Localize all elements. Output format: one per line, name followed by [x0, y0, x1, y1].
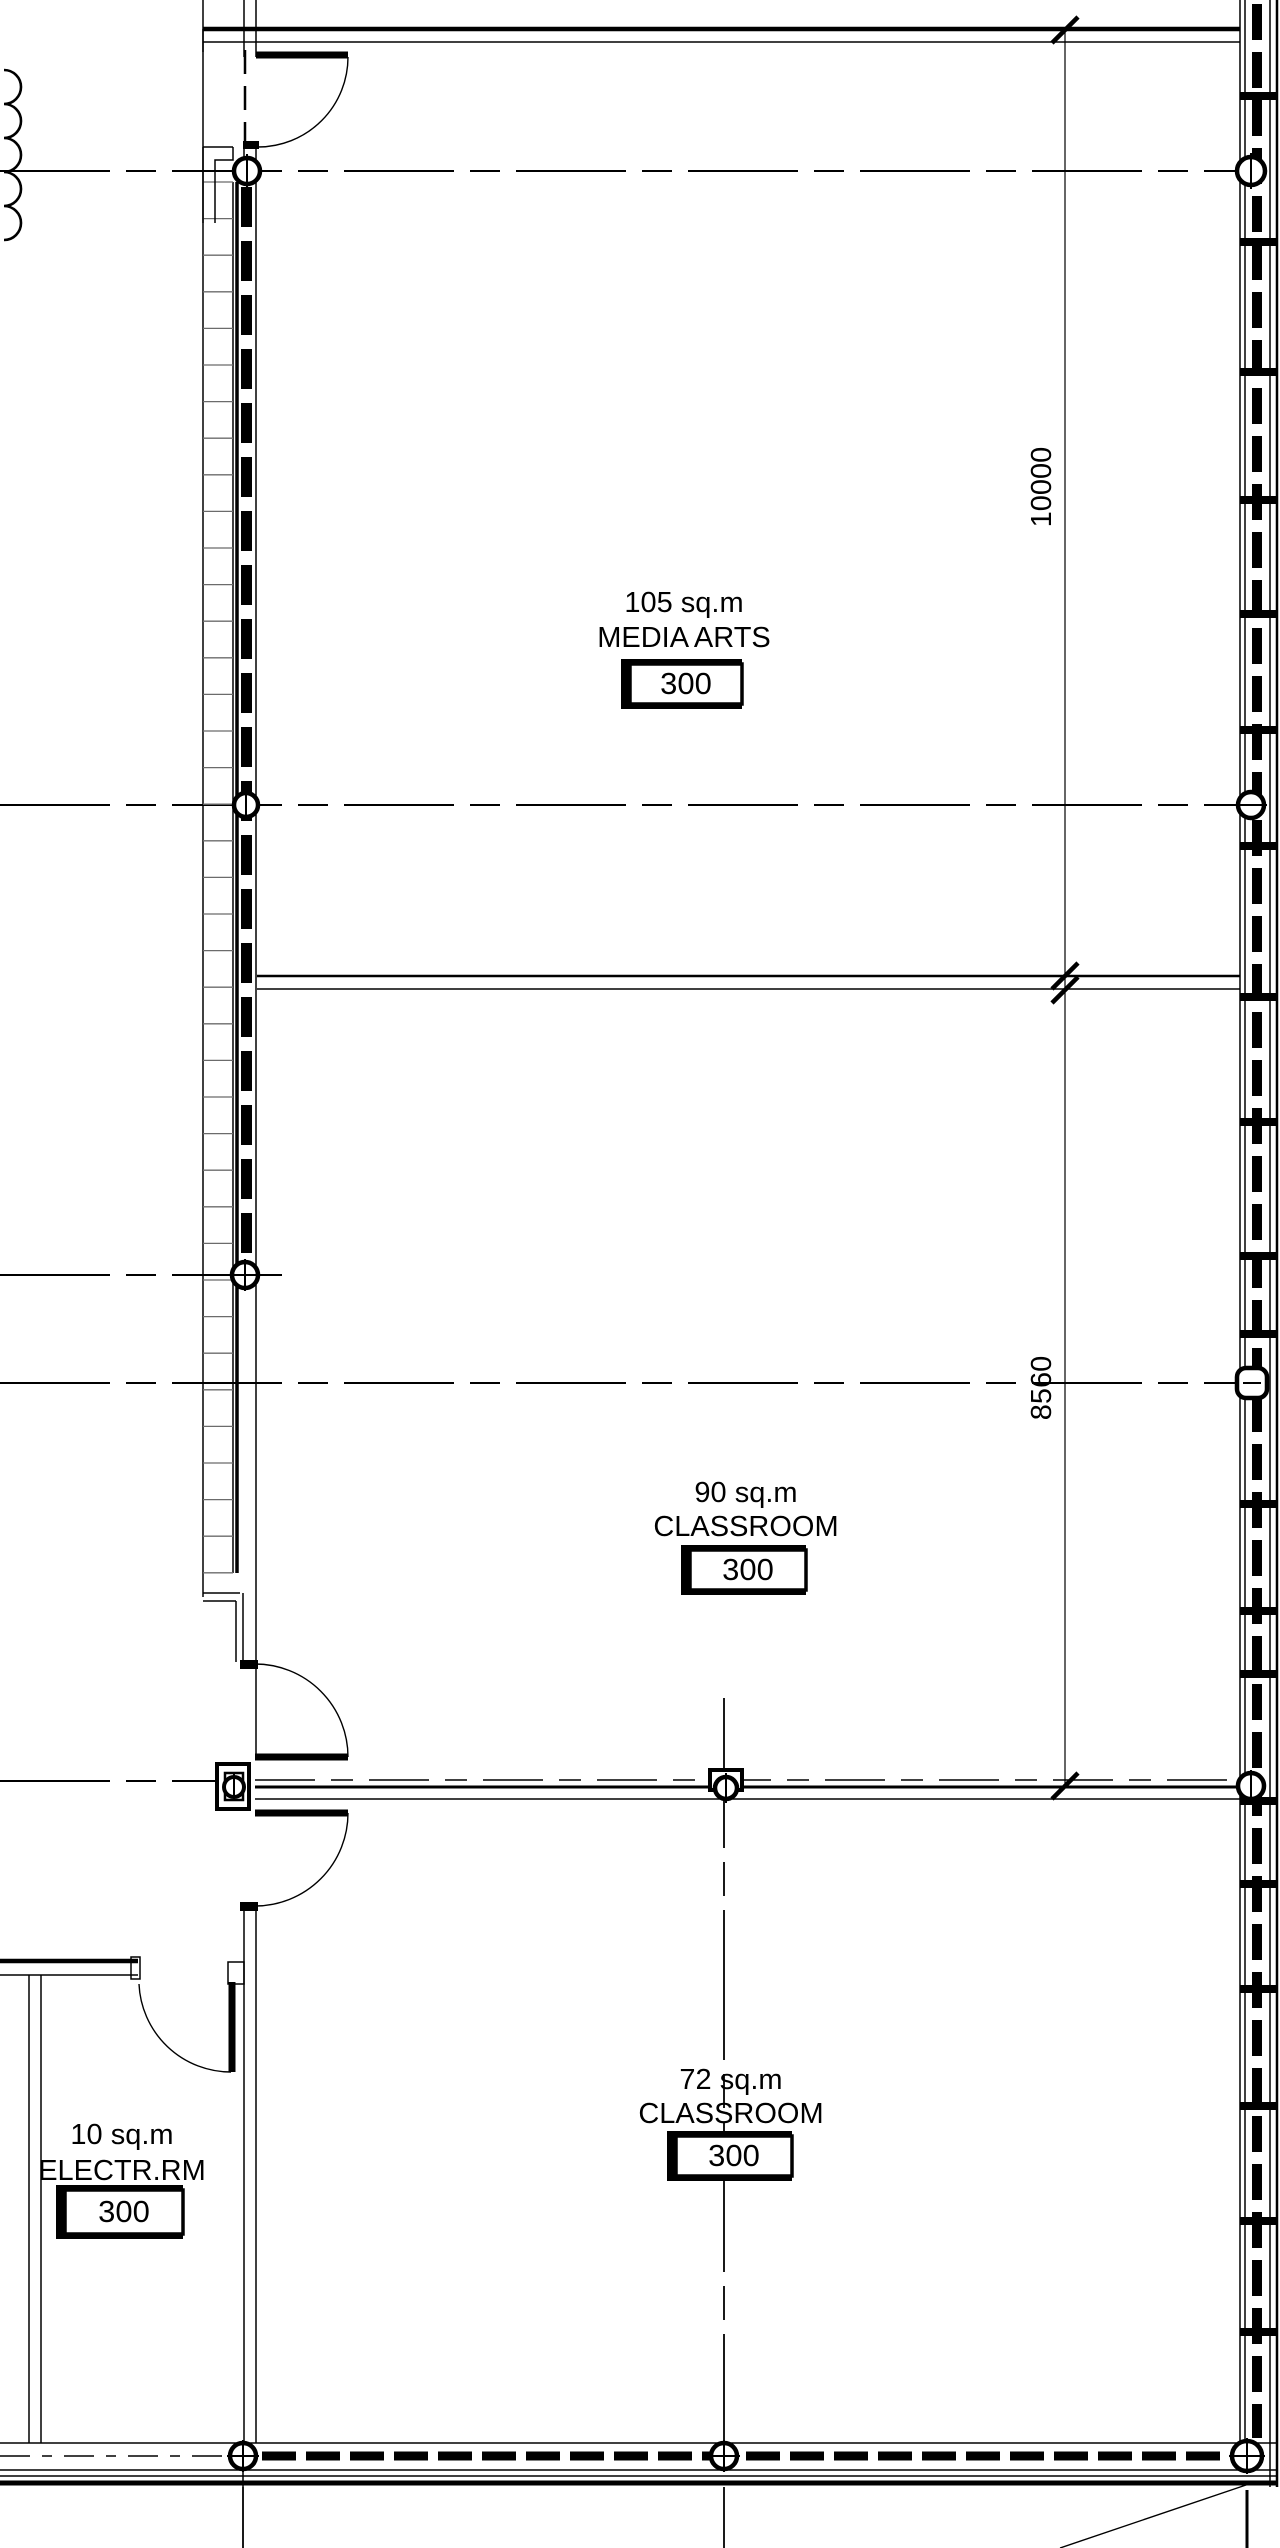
room-label-electrical-room: 10 sq.m ELECTR.RM 300: [38, 2119, 206, 2239]
dimension-value-8560: 8560: [1026, 1356, 1058, 1421]
room-tag-text: 300: [660, 666, 712, 701]
exterior-wall-top: [203, 29, 1240, 52]
room-name-classroom-72: CLASSROOM: [638, 2098, 823, 2130]
room-name-classroom-90: CLASSROOM: [653, 1511, 838, 1543]
room-name-media-arts: MEDIA ARTS: [597, 622, 771, 654]
floor-plan-drawing: 10000 8560 105 sq.m MEDIA ARTS 300 90 sq…: [0, 0, 1280, 2548]
room-tag-media-arts: 300: [621, 659, 742, 709]
door-classroom-72: [240, 1813, 348, 1911]
exterior-wall-left: [203, 0, 256, 2443]
room-tag-text: 300: [722, 1552, 774, 1587]
room-area-electrical: 10 sq.m: [70, 2119, 173, 2151]
break-line-diagonal: [1060, 2484, 1249, 2548]
door-jamb: [228, 1962, 244, 1984]
dimension-line-vertical: 10000 8560: [1026, 17, 1078, 1799]
room-tag-classroom-90: 300: [681, 1545, 806, 1595]
room-area-classroom-72: 72 sq.m: [679, 2064, 782, 2096]
room-tag-text: 300: [98, 2194, 150, 2229]
dimension-value-10000: 10000: [1026, 447, 1058, 528]
column-marker-center: [710, 1770, 742, 1803]
window-wall-right: [1240, 0, 1277, 2487]
room-name-electrical: ELECTR.RM: [38, 2155, 206, 2187]
column-marker-left: [217, 1764, 249, 1809]
interior-wall-classrooms: [255, 1780, 1240, 1799]
room-area-media-arts: 105 sq.m: [624, 587, 743, 619]
room-area-classroom-90: 90 sq.m: [694, 1477, 797, 1509]
room-tag-electrical: 300: [56, 2185, 183, 2239]
stair-hatch-rungs: [203, 182, 233, 1573]
room-tag-classroom-72: 300: [667, 2131, 792, 2181]
room-label-classroom-90: 90 sq.m CLASSROOM 300: [653, 1477, 838, 1595]
room-label-media-arts: 105 sq.m MEDIA ARTS 300: [597, 587, 771, 709]
revision-cloud-arcs: [4, 70, 21, 240]
exterior-wall-bottom: [0, 2443, 1277, 2548]
interior-wall-media-classroom: [257, 976, 1240, 989]
door-electrical-room: [139, 1982, 232, 2072]
floor-plan-canvas: 10000 8560 105 sq.m MEDIA ARTS 300 90 sq…: [0, 0, 1280, 2548]
room-tag-text: 300: [708, 2138, 760, 2173]
room-label-classroom-72: 72 sq.m CLASSROOM 300: [638, 2064, 823, 2181]
door-media-arts: [243, 55, 348, 149]
